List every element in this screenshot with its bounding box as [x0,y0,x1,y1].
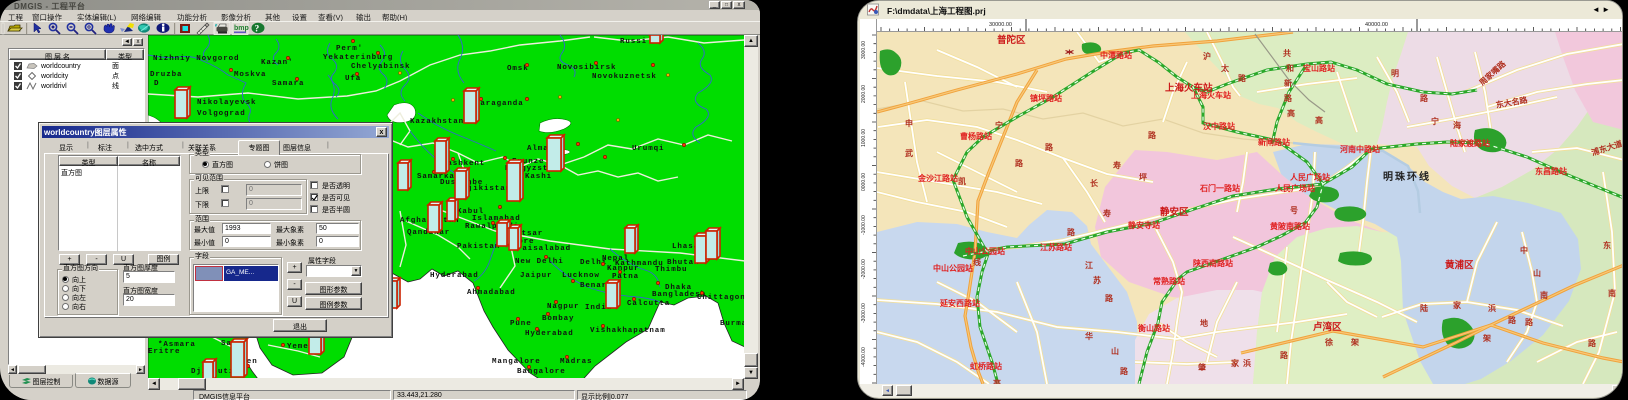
svg-text:东: 东 [1603,240,1611,250]
svg-text:陆家渡路站: 陆家渡路站 [1450,138,1490,148]
svg-text:太: 太 [1220,63,1230,73]
svg-text:肇: 肇 [1197,362,1207,372]
svg-text:华: 华 [1085,331,1093,341]
svg-text:架: 架 [1482,333,1491,343]
svg-text:路: 路 [1045,142,1054,152]
svg-text:D: D [154,80,159,88]
svg-text:Jaipur: Jaipur [520,272,552,280]
svg-text:Yekaterinburg: Yekaterinburg [323,54,393,62]
svg-text:路: 路 [1420,93,1429,103]
svg-text:Ufa: Ufa [345,75,361,83]
svg-text:Nizhniy Novgorod: Nizhniy Novgorod [153,55,239,63]
svg-text:寿: 寿 [1113,160,1121,170]
svg-text:上海火车站: 上海火车站 [1165,82,1213,94]
svg-text:0000.00: 0000.00 [861,173,867,191]
svg-text:Volgograd: Volgograd [197,110,246,118]
svg-text:Pakistan: Pakistan [457,243,500,251]
svg-text:浜: 浜 [1243,358,1251,368]
svg-text:Bombay: Bombay [542,315,574,323]
svg-text:路: 路 [1105,293,1114,303]
svg-text:陕西南路站: 陕西南路站 [1193,258,1233,268]
svg-text:路: 路 [1120,366,1129,376]
svg-text:Samara: Samara [272,80,304,88]
svg-text:Nikolayevsk: Nikolayevsk [197,99,256,107]
svg-text:Burma: Burma [720,320,744,328]
svg-text:和: 和 [1286,63,1294,73]
svg-text:中山公园站: 中山公园站 [965,246,1005,256]
svg-text:家: 家 [1453,300,1462,310]
svg-text:人民广场站: 人民广场站 [1290,172,1330,182]
svg-text:路: 路 [1015,158,1024,168]
svg-text:?: ? [255,25,260,35]
svg-text:汉中路站: 汉中路站 [1203,121,1235,131]
svg-text:Madras: Madras [560,358,592,366]
svg-text:高: 高 [1287,108,1295,118]
svg-text:山: 山 [1111,346,1119,356]
svg-text:宁: 宁 [995,120,1003,130]
svg-text:Karaganda: Karaganda [475,100,524,108]
svg-text:Islamabad: Islamabad [472,215,521,223]
svg-text:沪: 沪 [1203,51,1211,61]
svg-text:Moskva: Moskva [234,71,266,79]
svg-text:人民广场站: 人民广场站 [1275,183,1315,193]
svg-text:东昌路站: 东昌路站 [1535,166,1567,176]
svg-text:石门一路站: 石门一路站 [1199,183,1240,193]
svg-text:中潭路站: 中潭路站 [1100,50,1132,60]
svg-text:Bangalore: Bangalore [517,368,566,376]
svg-text:徐: 徐 [1324,337,1333,347]
svg-text:静安寺站: 静安寺站 [1128,220,1160,230]
svg-text:路: 路 [1238,73,1247,83]
svg-text:中山公园站: 中山公园站 [933,263,973,273]
svg-text:武: 武 [905,148,913,158]
svg-text:凯: 凯 [958,176,966,186]
svg-text:地: 地 [1200,318,1208,328]
svg-text:虹桥路站: 虹桥路站 [970,361,1002,371]
svg-text:江苏路站: 江苏路站 [1040,242,1072,252]
svg-text:40000.00: 40000.00 [1365,22,1388,28]
svg-text:New Delhi: New Delhi [515,258,564,266]
svg-text:河南中路站: 河南中路站 [1340,144,1380,154]
svg-text:浜: 浜 [1488,303,1496,313]
svg-text:家: 家 [1231,358,1240,368]
svg-text:申: 申 [905,118,913,128]
svg-text:共: 共 [1283,48,1291,58]
svg-text:Druzba: Druzba [150,71,182,79]
svg-text:号: 号 [1290,206,1298,215]
svg-text:镇坪路站: 镇坪路站 [1030,93,1062,103]
svg-text:路: 路 [1067,227,1076,237]
svg-text:Novokuznetsk: Novokuznetsk [592,73,657,81]
svg-text:普陀区: 普陀区 [997,34,1026,46]
svg-text:Kazan': Kazan' [261,59,293,67]
svg-text:Omsk: Omsk [507,65,529,73]
svg-text:新: 新 [1284,78,1292,88]
svg-text:Russi: Russi [620,38,647,46]
svg-text:Chittagong: Chittagong [697,294,744,302]
svg-text:寿: 寿 [1103,208,1111,218]
svg-text:-4000.00: -4000.00 [861,347,867,367]
svg-text:路: 路 [1280,350,1289,360]
svg-text:黄陂南路站: 黄陂南路站 [1270,221,1310,231]
svg-text:架: 架 [1350,337,1359,347]
svg-text:2000.00: 2000.00 [861,85,867,103]
svg-text:Kazakhstan: Kazakhstan [410,118,464,126]
svg-text:长: 长 [1090,178,1099,188]
svg-text:江: 江 [1085,260,1093,270]
svg-text:宝山路站: 宝山路站 [1303,63,1335,73]
svg-text:海: 海 [1453,120,1461,130]
svg-text:衡山路站: 衡山路站 [1138,323,1170,333]
svg-text:金沙江路站: 金沙江路站 [917,173,958,183]
svg-text:静安区: 静安区 [1160,206,1189,218]
svg-text:线: 线 [973,257,981,267]
svg-text:明珠环线: 明珠环线 [1383,170,1431,183]
svg-text:高: 高 [1315,115,1323,125]
svg-text:Vishakhapatnam: Vishakhapatnam [590,327,666,335]
svg-text:苏: 苏 [1093,275,1101,285]
svg-text:Ahmadabad: Ahmadabad [467,289,516,297]
svg-text:明: 明 [1391,69,1399,78]
svg-text:黄浦区: 黄浦区 [1445,259,1474,271]
svg-text:Hyderabad: Hyderabad [525,330,574,338]
svg-text:Thimbu: Thimbu [655,266,687,274]
svg-text:-3000.00: -3000.00 [861,303,867,323]
svg-text:路: 路 [1525,317,1534,327]
svg-text:常熟路站: 常熟路站 [1153,276,1185,286]
svg-text:Pune: Pune [510,320,532,328]
svg-text:路: 路 [1148,130,1157,140]
svg-text:Perm': Perm' [336,45,363,53]
svg-text:Calcutta: Calcutta [627,300,670,308]
svg-text:路: 路 [1508,315,1517,325]
svg-text:30000.00: 30000.00 [989,22,1012,28]
svg-text:路: 路 [1588,338,1597,348]
svg-text:-2000.00: -2000.00 [861,259,867,279]
svg-text:Lucknow: Lucknow [562,272,600,280]
svg-text:1000.00: 1000.00 [861,129,867,147]
svg-text:Nagpur: Nagpur [547,303,579,311]
svg-text:延安西路站: 延安西路站 [939,298,980,308]
svg-text:Faisalabad: Faisalabad [517,245,571,253]
svg-text:新闸路站: 新闸路站 [1258,137,1290,147]
svg-text:曹杨路站: 曹杨路站 [960,131,992,141]
svg-text:Urumqi: Urumqi [632,145,664,153]
svg-text:Eritre: Eritre [148,348,180,356]
svg-text:Kashi: Kashi [525,173,552,181]
svg-text:陆: 陆 [1420,303,1428,313]
svg-text:-1000.00: -1000.00 [861,215,867,235]
svg-text:宁: 宁 [1431,116,1439,126]
svg-text:南: 南 [1540,290,1548,300]
svg-text:3000.00: 3000.00 [861,41,867,59]
svg-text:坪: 坪 [1139,172,1147,182]
svg-text:南: 南 [1608,288,1616,298]
svg-text:bmp: bmp [234,25,249,32]
svg-text:Novosibirsk: Novosibirsk [557,64,616,72]
svg-text:卢湾区: 卢湾区 [1313,321,1342,333]
svg-text:Mangalore: Mangalore [492,358,541,366]
svg-text:山: 山 [1533,268,1541,278]
svg-text:路: 路 [1284,93,1293,103]
svg-text:Chelyabinsk: Chelyabinsk [351,63,410,71]
svg-text:中: 中 [1520,245,1528,255]
svg-text:Hyderabad: Hyderabad [430,272,479,280]
